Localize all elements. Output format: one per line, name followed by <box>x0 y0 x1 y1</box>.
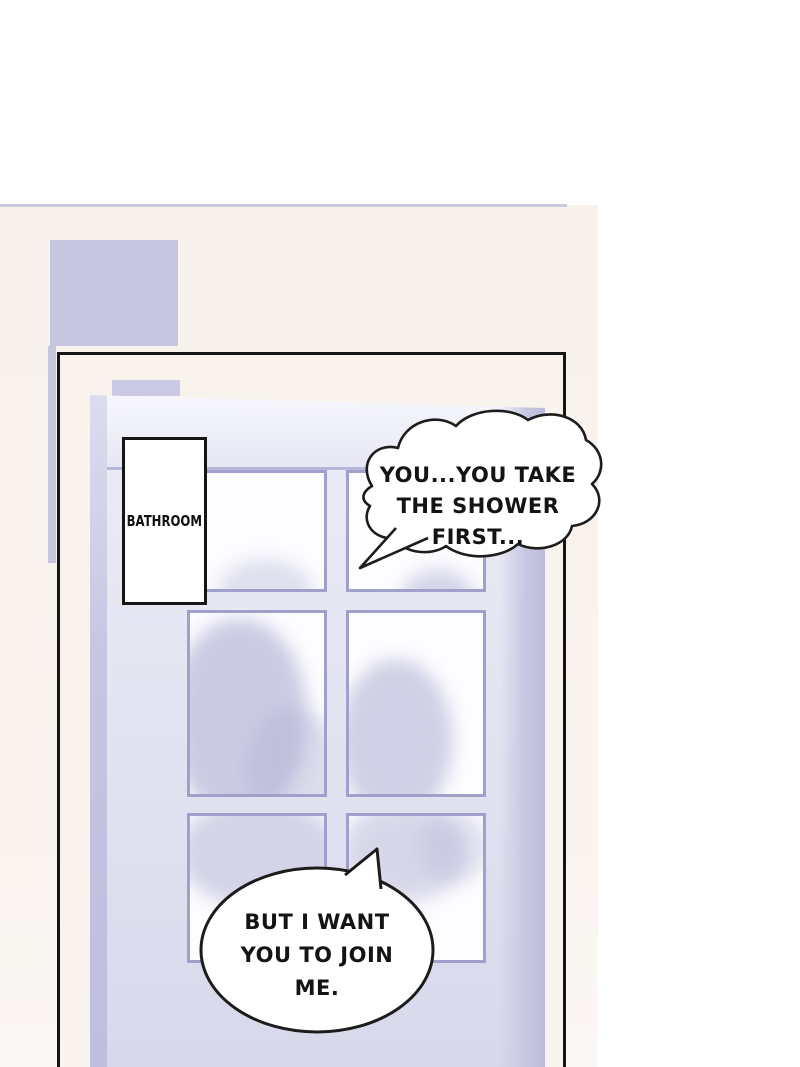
frosted-silhouette-blob <box>346 659 453 797</box>
speech-bubble-shower-first: YOU...YOU TAKE THE SHOWER FIRST... <box>344 402 606 580</box>
door-left-edge <box>90 392 107 1067</box>
speech-line: YOU...YOU TAKE <box>379 463 577 487</box>
bathroom-sign: BATHROOM <box>122 437 207 605</box>
speech-line: ME. <box>295 976 340 1000</box>
bathroom-sign-label: BATHROOM <box>127 512 202 530</box>
frosted-silhouette-blob <box>218 559 313 592</box>
door-pane-middle-right <box>346 610 486 797</box>
door-top-tab <box>112 380 180 396</box>
decor-lavender-sliver <box>48 346 56 563</box>
speech-line: YOU TO JOIN <box>240 943 394 967</box>
door-pane-middle-left <box>187 610 327 797</box>
decor-lavender-square <box>50 240 178 346</box>
speech-bubble-join-me: BUT I WANT YOU TO JOIN ME. <box>195 845 445 1045</box>
backdrop-divider-line <box>0 204 567 207</box>
comic-page: { "sign": { "label": "BATHROOM" }, "spee… <box>0 0 800 1067</box>
speech-line: FIRST... <box>432 525 525 549</box>
speech-line: THE SHOWER <box>397 494 560 518</box>
speech-line: BUT I WANT <box>244 910 389 934</box>
door-pane-top-left <box>187 470 327 592</box>
